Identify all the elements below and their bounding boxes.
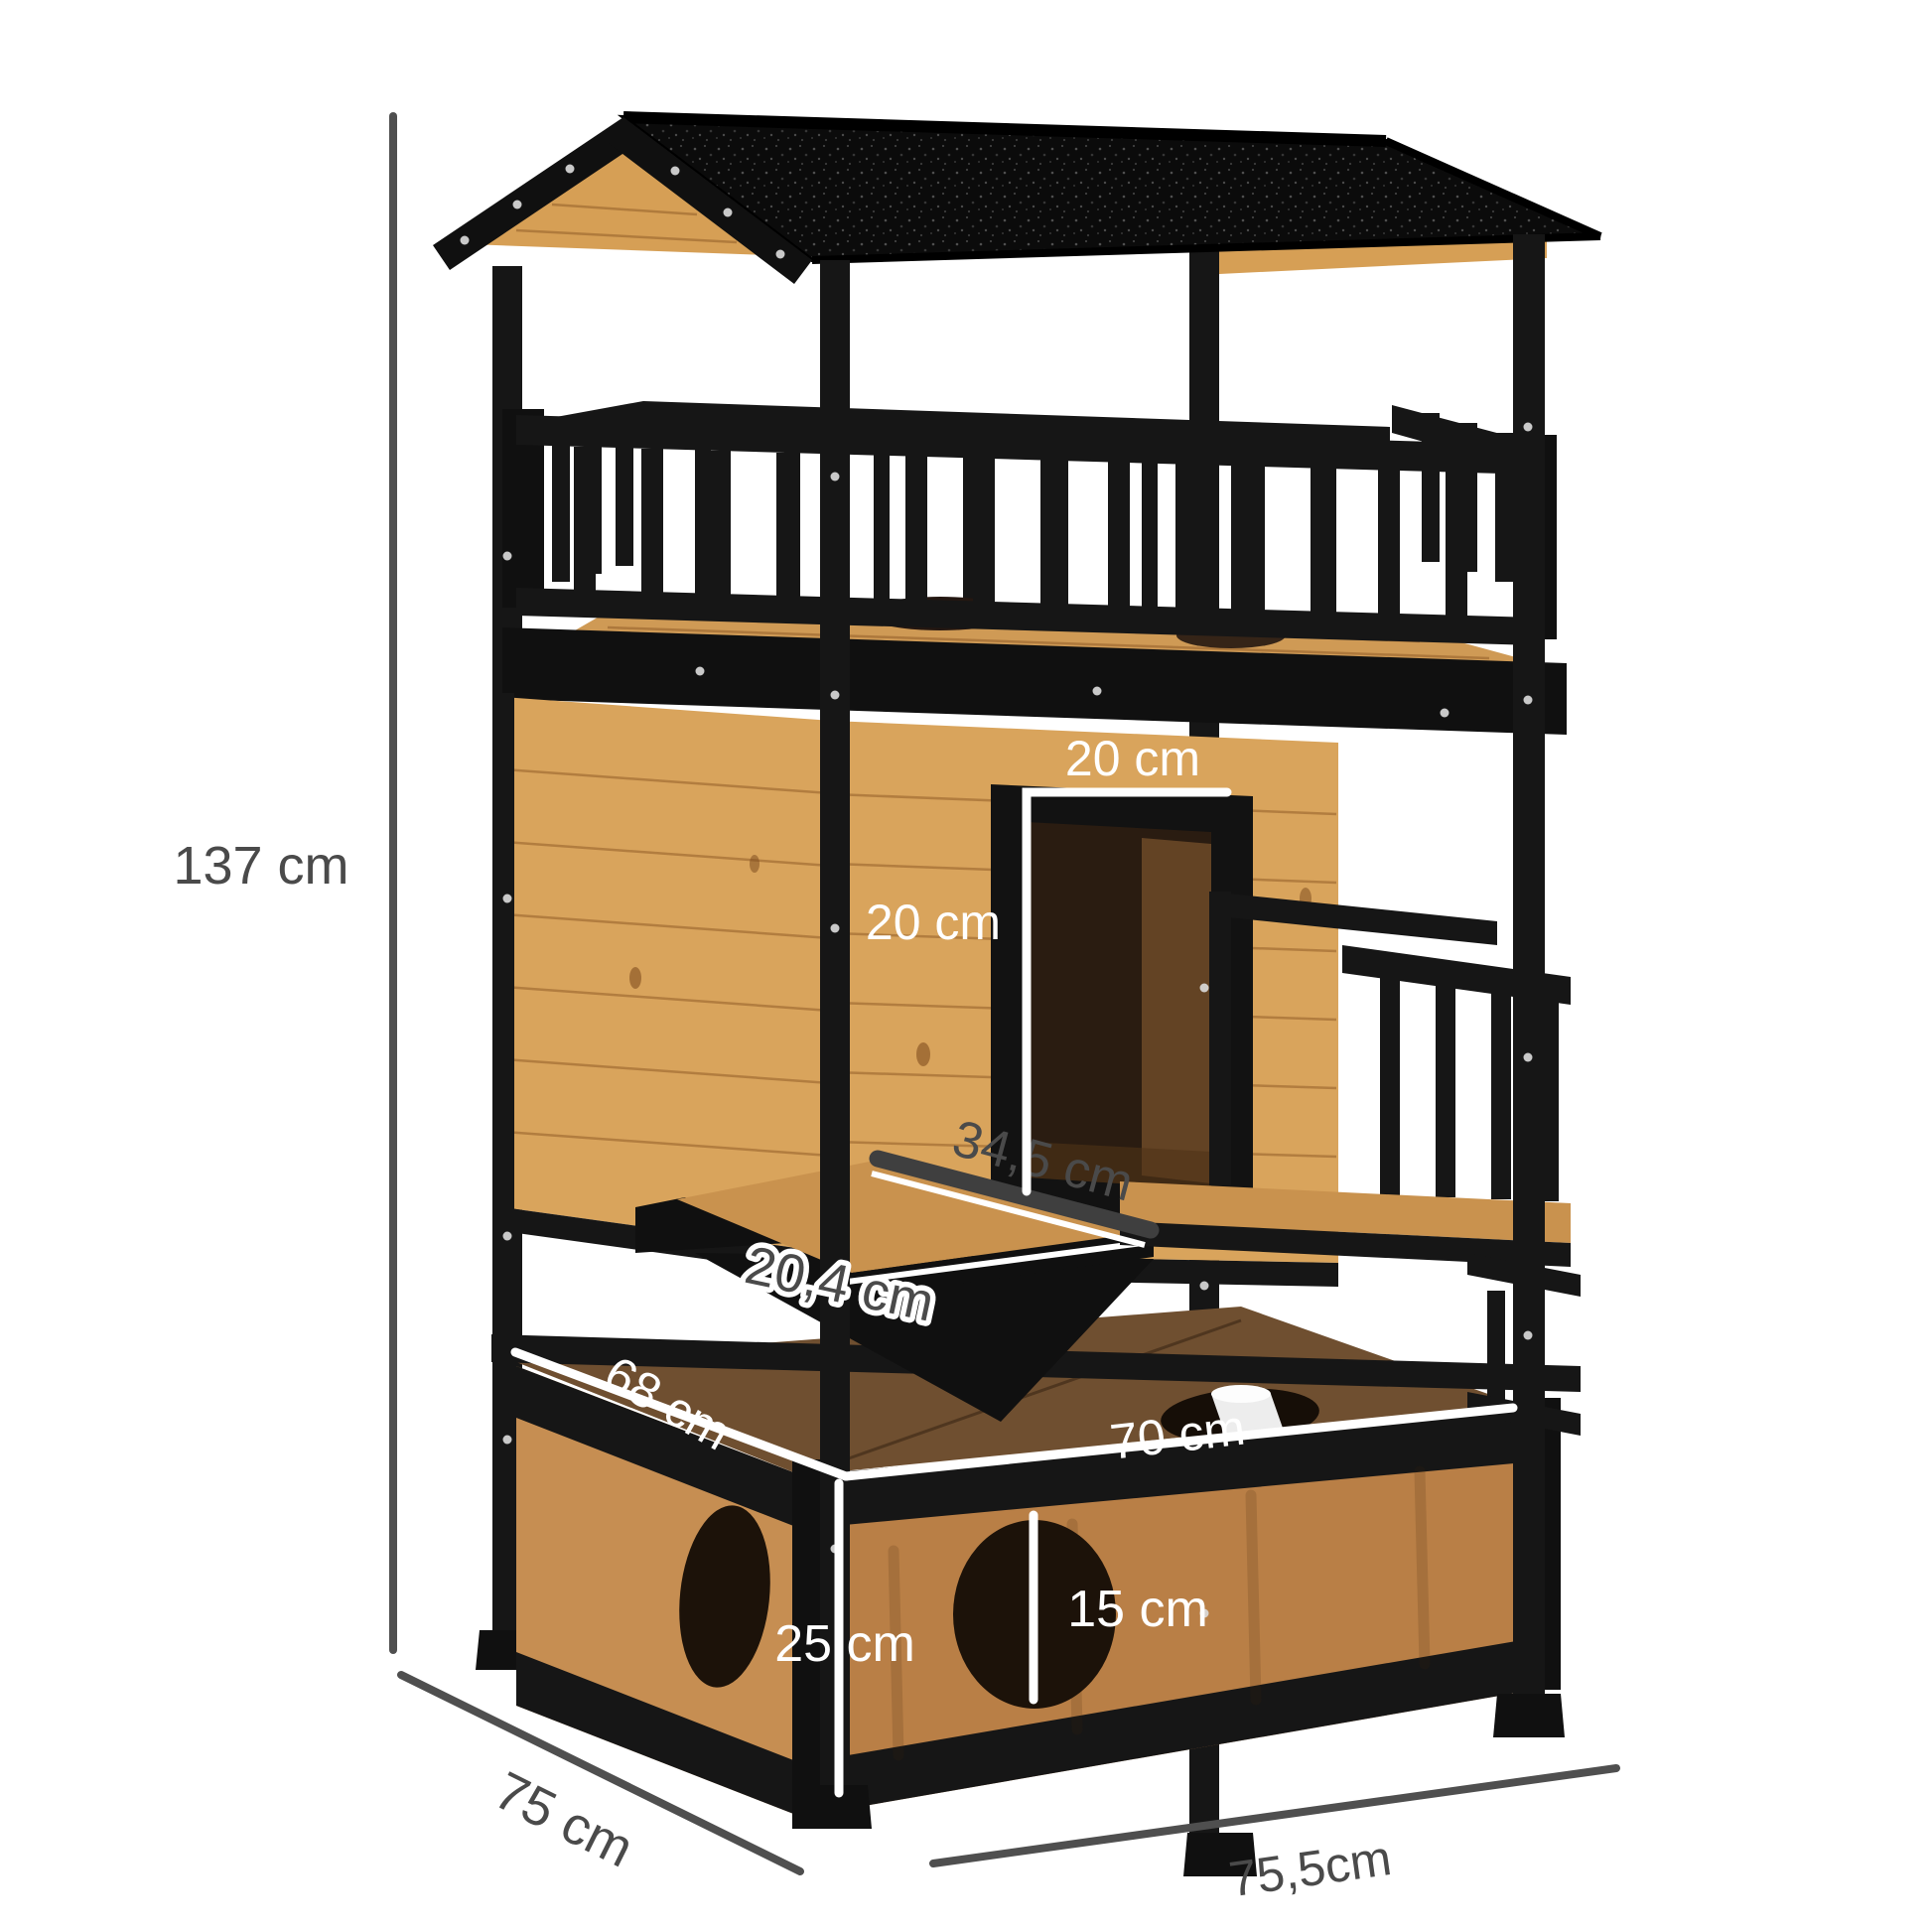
front-right-foot — [1493, 1694, 1565, 1737]
dimension-label-base-height: 25 cm — [774, 1615, 915, 1673]
dimension-label-door-width: 20 cm — [1065, 731, 1200, 786]
dimension-label-total-height: 137 cm — [173, 836, 348, 896]
cage-left-frame — [1209, 892, 1231, 1185]
dimension-label-door-height: 20 cm — [866, 895, 1001, 950]
roof — [433, 117, 1600, 284]
door-interior-wood — [1142, 838, 1211, 1183]
product-diagram-page: 137 cm 75 cm 75,5cm 34,5 cm 20,4 cm 20 c… — [0, 0, 1932, 1932]
dimension-label-hole-diameter: 15 cm — [1067, 1581, 1208, 1638]
cat-house-dimension-diagram: 137 cm 75 cm 75,5cm 34,5 cm 20,4 cm 20 c… — [0, 0, 1932, 1932]
house-left-edge-frame — [492, 693, 514, 1211]
balcony — [502, 401, 1567, 735]
